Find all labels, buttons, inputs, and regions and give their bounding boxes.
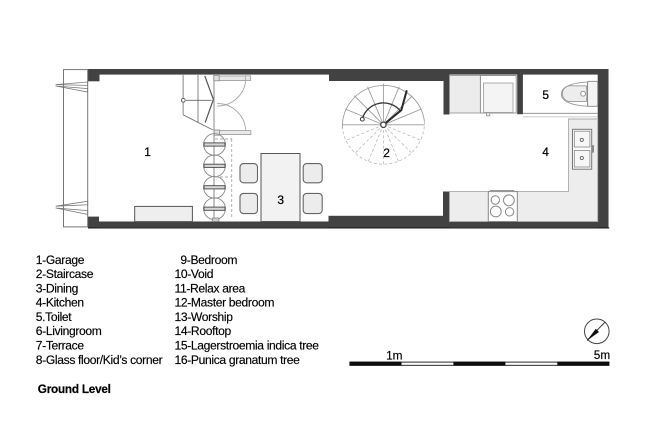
svg-text:2-Staircase: 2-Staircase (36, 267, 94, 281)
svg-text:3-Dining: 3-Dining (36, 281, 78, 295)
svg-text:Ground Level: Ground Level (38, 383, 111, 396)
svg-text:10-Void: 10-Void (175, 267, 214, 281)
svg-text:14-Rooftop: 14-Rooftop (175, 324, 232, 338)
svg-text:6-Livingroom: 6-Livingroom (36, 324, 102, 338)
svg-text:9-Bedroom: 9-Bedroom (180, 253, 237, 267)
svg-text:1-Garage: 1-Garage (36, 253, 85, 267)
svg-text:8-Glass floor/Kid’s corner: 8-Glass floor/Kid’s corner (36, 353, 163, 367)
svg-text:16-Punica granatum tree: 16-Punica granatum tree (175, 353, 301, 367)
svg-text:13-Worship: 13-Worship (175, 310, 234, 324)
svg-text:1: 1 (144, 145, 151, 159)
svg-text:4: 4 (542, 145, 549, 159)
svg-text:5: 5 (542, 88, 549, 102)
svg-text:12-Master bedroom: 12-Master bedroom (175, 296, 275, 310)
svg-text:1m: 1m (386, 349, 403, 363)
svg-text:15-Lagerstroemia indica tree: 15-Lagerstroemia indica tree (175, 339, 320, 353)
svg-text:5.Toilet: 5.Toilet (36, 310, 73, 324)
svg-text:11-Relax area: 11-Relax area (175, 281, 246, 295)
svg-text:7-Terrace: 7-Terrace (36, 339, 85, 353)
svg-text:5m: 5m (594, 348, 611, 362)
svg-text:2: 2 (383, 146, 390, 160)
svg-text:3: 3 (277, 193, 284, 207)
svg-text:4-Kitchen: 4-Kitchen (36, 296, 84, 310)
